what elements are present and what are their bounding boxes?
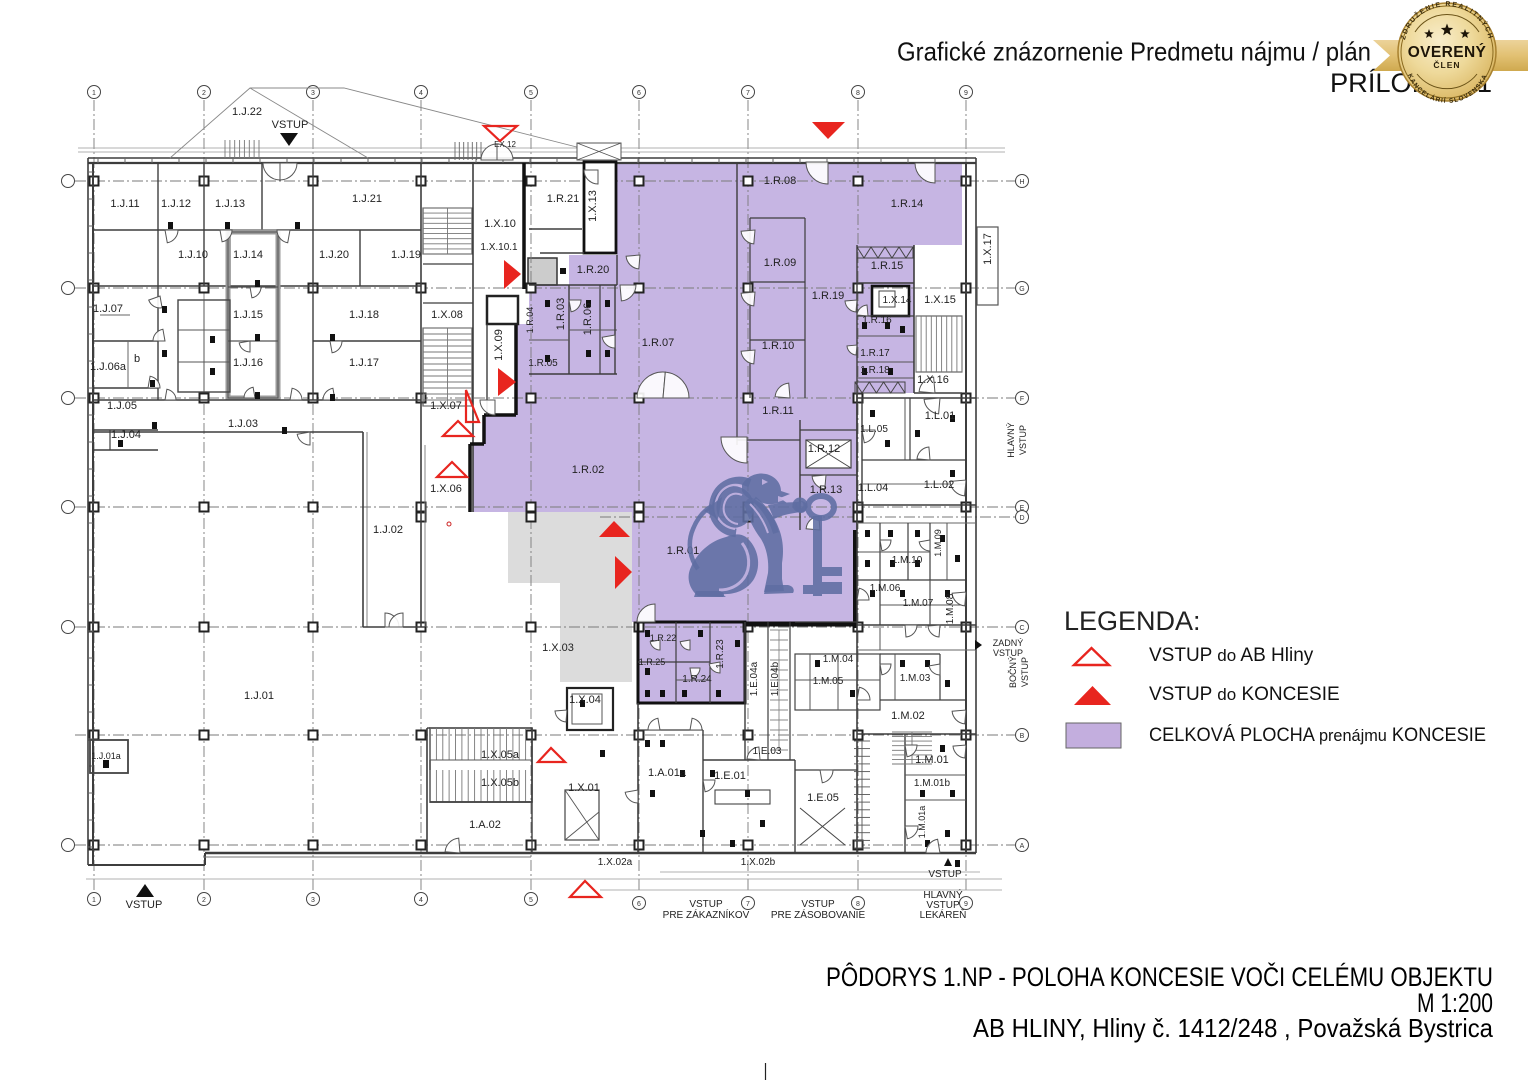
svg-text:1.X.15: 1.X.15: [924, 294, 956, 306]
svg-text:1.M.06: 1.M.06: [870, 583, 901, 594]
svg-text:VSTUP: VSTUP: [126, 899, 163, 911]
svg-text:1.R.09: 1.R.09: [764, 257, 796, 269]
svg-text:1.X.17: 1.X.17: [982, 233, 994, 265]
svg-text:1.L.04: 1.L.04: [858, 482, 889, 494]
svg-text:D: D: [1019, 515, 1024, 522]
svg-text:1.J.03: 1.J.03: [228, 418, 258, 430]
svg-text:1.J.18: 1.J.18: [349, 309, 379, 321]
svg-text:VSTUP: VSTUP: [1020, 657, 1030, 687]
svg-text:1.R.07: 1.R.07: [642, 337, 674, 349]
svg-text:ZADNÝ: ZADNÝ: [993, 638, 1024, 648]
svg-text:1.X.14: 1.X.14: [883, 295, 912, 306]
svg-text:VSTUP do AB Hliny: VSTUP do AB Hliny: [1149, 645, 1314, 666]
svg-text:B: B: [1020, 733, 1025, 740]
svg-text:1.X.09: 1.X.09: [493, 329, 505, 361]
svg-text:1.J.20: 1.J.20: [319, 249, 349, 261]
svg-text:1.R.24: 1.R.24: [682, 674, 712, 685]
svg-text:1.E.04b: 1.E.04b: [770, 661, 781, 696]
svg-text:1.R.01: 1.R.01: [667, 545, 699, 557]
svg-text:1.R.12: 1.R.12: [808, 443, 840, 455]
svg-text:1.M.01a: 1.M.01a: [917, 806, 927, 839]
svg-text:1.E.04a: 1.E.04a: [749, 661, 760, 696]
svg-text:1.X.01: 1.X.01: [568, 782, 600, 794]
svg-text:1.X.10.1: 1.X.10.1: [480, 242, 518, 253]
svg-text:4: 4: [419, 897, 423, 904]
svg-text:H: H: [1019, 179, 1024, 186]
svg-text:1.L.02: 1.L.02: [924, 479, 955, 491]
svg-text:1.M.09: 1.M.09: [933, 529, 943, 557]
svg-text:1.J.17: 1.J.17: [349, 357, 379, 369]
svg-text:1.J.11: 1.J.11: [110, 198, 139, 210]
svg-text:VSTUP: VSTUP: [801, 899, 835, 910]
svg-text:1.J.10: 1.J.10: [178, 249, 208, 261]
svg-text:1: 1: [92, 90, 96, 97]
svg-text:1.M.10: 1.M.10: [892, 555, 923, 566]
svg-text:1.X.03: 1.X.03: [542, 642, 574, 654]
svg-text:1.A.01a: 1.A.01a: [648, 767, 687, 779]
svg-text:1.J.01: 1.J.01: [244, 690, 274, 702]
svg-text:1.M.03: 1.M.03: [900, 673, 931, 684]
svg-text:5: 5: [529, 897, 533, 904]
svg-text:1.J.12: 1.J.12: [161, 198, 191, 210]
svg-text:C: C: [1019, 625, 1024, 632]
svg-text:1.R.17: 1.R.17: [860, 348, 890, 359]
svg-text:1.M.08: 1.M.08: [945, 593, 956, 624]
svg-text:9: 9: [964, 90, 968, 97]
svg-text:9: 9: [964, 901, 968, 908]
svg-text:1.R.05: 1.R.05: [528, 358, 558, 369]
svg-text:1.M.05: 1.M.05: [813, 676, 844, 687]
svg-text:1.J.22: 1.J.22: [232, 106, 262, 118]
svg-text:1.M.07: 1.M.07: [903, 598, 934, 609]
svg-text:1.J.01a: 1.J.01a: [91, 751, 121, 761]
svg-text:F: F: [1020, 396, 1024, 403]
svg-text:2: 2: [202, 90, 206, 97]
svg-text:A: A: [1020, 843, 1025, 850]
svg-text:1.J.07: 1.J.07: [93, 303, 123, 315]
svg-text:1.X.06: 1.X.06: [430, 483, 462, 495]
svg-text:1.X.05a: 1.X.05a: [481, 749, 520, 761]
svg-text:1.X.05b: 1.X.05b: [481, 777, 519, 789]
svg-text:3: 3: [311, 897, 315, 904]
svg-text:1.J.19: 1.J.19: [391, 249, 421, 261]
svg-text:1.R.10: 1.R.10: [762, 340, 794, 352]
svg-text:HLAVNÝ: HLAVNÝ: [1006, 422, 1016, 457]
svg-text:1.R.11: 1.R.11: [762, 405, 794, 417]
svg-text:G: G: [1019, 286, 1024, 293]
svg-text:1: 1: [92, 897, 96, 904]
svg-text:VSTUP do KONCESIE: VSTUP do KONCESIE: [1149, 684, 1340, 705]
svg-text:VSTUP: VSTUP: [689, 899, 723, 910]
svg-text:1.R.16: 1.R.16: [862, 315, 892, 326]
svg-text:1.M.01: 1.M.01: [915, 754, 949, 766]
svg-text:1.R.25: 1.R.25: [639, 657, 666, 667]
svg-text:1.L.01: 1.L.01: [925, 410, 956, 422]
svg-text:1.X.07: 1.X.07: [430, 400, 462, 412]
svg-text:1.L.05: 1.L.05: [860, 424, 888, 435]
svg-text:1.J.05: 1.J.05: [107, 400, 137, 412]
svg-text:1.R.20: 1.R.20: [577, 264, 609, 276]
svg-text:1.R.23: 1.R.23: [715, 639, 726, 669]
svg-text:1.R.22: 1.R.22: [650, 633, 677, 643]
svg-text:1.J.04: 1.J.04: [111, 429, 141, 441]
svg-text:1.J.14: 1.J.14: [233, 249, 263, 261]
svg-text:1.R.18: 1.R.18: [860, 365, 890, 376]
svg-text:1.R.14: 1.R.14: [891, 198, 923, 210]
svg-text:PÔDORYS 1.NP - POLOHA KONCESIE: PÔDORYS 1.NP - POLOHA KONCESIE VOČI CELÉ…: [826, 961, 1493, 992]
svg-text:1.M.04: 1.M.04: [823, 654, 854, 665]
svg-text:VSTUP: VSTUP: [272, 119, 309, 131]
svg-text:6: 6: [637, 901, 641, 908]
svg-text:1.R.04: 1.R.04: [525, 307, 535, 334]
svg-text:1.M.02: 1.M.02: [891, 710, 925, 722]
svg-text:1.J.15: 1.J.15: [233, 309, 263, 321]
svg-text:1.E.03: 1.E.03: [753, 746, 782, 757]
svg-text:1.J.02: 1.J.02: [373, 524, 403, 536]
svg-text:1.X.10: 1.X.10: [484, 218, 516, 230]
svg-text:VSTUP: VSTUP: [1018, 425, 1028, 455]
svg-text:LEKÁREŇ: LEKÁREŇ: [920, 908, 967, 921]
svg-text:PRE ZÁSOBOVANIE: PRE ZÁSOBOVANIE: [771, 908, 866, 921]
svg-text:1.J.13: 1.J.13: [215, 198, 245, 210]
svg-text:1.E.01: 1.E.01: [714, 770, 746, 782]
svg-text:1.J.16: 1.J.16: [233, 357, 263, 369]
svg-text:1.X.02a: 1.X.02a: [598, 857, 633, 868]
svg-text:Grafické znázornenie Predmetu: Grafické znázornenie Predmetu nájmu / pl…: [897, 37, 1371, 67]
svg-text:1.M.01b: 1.M.01b: [914, 778, 951, 789]
svg-text:1.R.21: 1.R.21: [547, 193, 579, 205]
svg-text:1.J.21: 1.J.21: [352, 193, 382, 205]
svg-text:1.X.13: 1.X.13: [587, 190, 599, 222]
svg-text:5: 5: [529, 90, 533, 97]
svg-text:7: 7: [746, 901, 750, 908]
svg-text:1.R.02: 1.R.02: [572, 464, 604, 476]
svg-text:EX.12: EX.12: [494, 140, 516, 149]
svg-text:1.X.02b: 1.X.02b: [741, 857, 776, 868]
svg-text:1.X.04: 1.X.04: [569, 694, 601, 706]
svg-text:AB HLINY, Hliny č. 1412/248 ,: AB HLINY, Hliny č. 1412/248 , Považská B…: [973, 1013, 1493, 1043]
svg-text:2: 2: [202, 897, 206, 904]
svg-text:LEGENDA:: LEGENDA:: [1064, 606, 1201, 636]
svg-text:1.X.16: 1.X.16: [917, 374, 949, 386]
svg-text:CELKOVÁ PLOCHA prenájmu KONCES: CELKOVÁ PLOCHA prenájmu KONCESIE: [1149, 725, 1486, 746]
svg-text:OVERENÝ: OVERENÝ: [1408, 43, 1487, 61]
svg-text:1.R.15: 1.R.15: [871, 260, 903, 272]
svg-text:6: 6: [637, 90, 641, 97]
svg-text:BOČNÝ: BOČNÝ: [1008, 656, 1018, 688]
svg-text:1.J.06a: 1.J.06a: [90, 361, 127, 373]
svg-text:8: 8: [856, 901, 860, 908]
svg-text:1.E.05: 1.E.05: [807, 792, 839, 804]
svg-text:1.A.02: 1.A.02: [469, 819, 501, 831]
svg-text:1.R.19: 1.R.19: [812, 290, 844, 302]
svg-text:E: E: [1020, 505, 1025, 512]
svg-text:1.X.08: 1.X.08: [431, 309, 463, 321]
svg-text:8: 8: [856, 90, 860, 97]
svg-text:1.R.06: 1.R.06: [582, 303, 594, 335]
svg-text:1.R.03: 1.R.03: [555, 298, 567, 330]
svg-text:1.R.08: 1.R.08: [764, 175, 796, 187]
svg-text:4: 4: [419, 90, 423, 97]
svg-text:7: 7: [746, 90, 750, 97]
svg-text:3: 3: [311, 90, 315, 97]
svg-text:ČLEN: ČLEN: [1433, 59, 1460, 70]
svg-text:PRE ZÁKAZNÍKOV: PRE ZÁKAZNÍKOV: [663, 908, 750, 921]
svg-text:b: b: [134, 353, 140, 365]
svg-text:VSTUP: VSTUP: [928, 869, 962, 880]
